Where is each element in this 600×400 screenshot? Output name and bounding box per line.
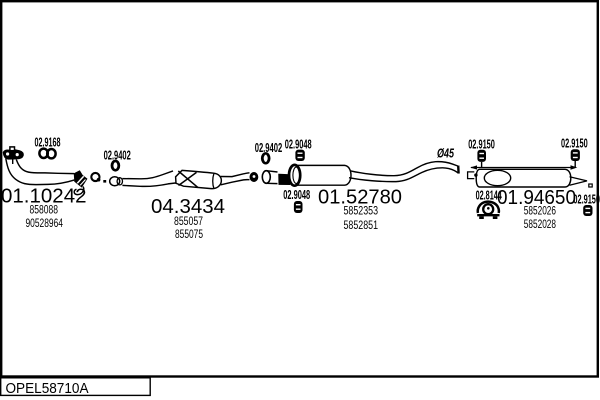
svg-text:5852851: 5852851 <box>344 220 379 232</box>
svg-text:858088: 858088 <box>30 205 59 217</box>
svg-text:02.9168: 02.9168 <box>35 135 61 149</box>
svg-text:5852028: 5852028 <box>524 219 556 231</box>
svg-text:02.9402: 02.9402 <box>255 141 283 155</box>
svg-text:Ø45: Ø45 <box>437 146 455 160</box>
svg-text:5852353: 5852353 <box>344 206 379 218</box>
svg-text:5852026: 5852026 <box>524 206 556 218</box>
svg-text:02.9048: 02.9048 <box>283 188 310 202</box>
svg-text:04.3434: 04.3434 <box>151 195 225 218</box>
svg-text:90528964: 90528964 <box>26 218 64 230</box>
svg-text:02.8144: 02.8144 <box>476 188 502 202</box>
svg-text:02.9150: 02.9150 <box>573 193 600 207</box>
svg-text:OPEL58710A: OPEL58710A <box>6 380 90 397</box>
svg-text:02.9150: 02.9150 <box>561 137 588 151</box>
svg-text:02.9150: 02.9150 <box>468 137 495 151</box>
svg-text:855075: 855075 <box>175 229 203 241</box>
svg-text:02.9048: 02.9048 <box>285 138 312 152</box>
svg-text:855057: 855057 <box>174 216 203 228</box>
